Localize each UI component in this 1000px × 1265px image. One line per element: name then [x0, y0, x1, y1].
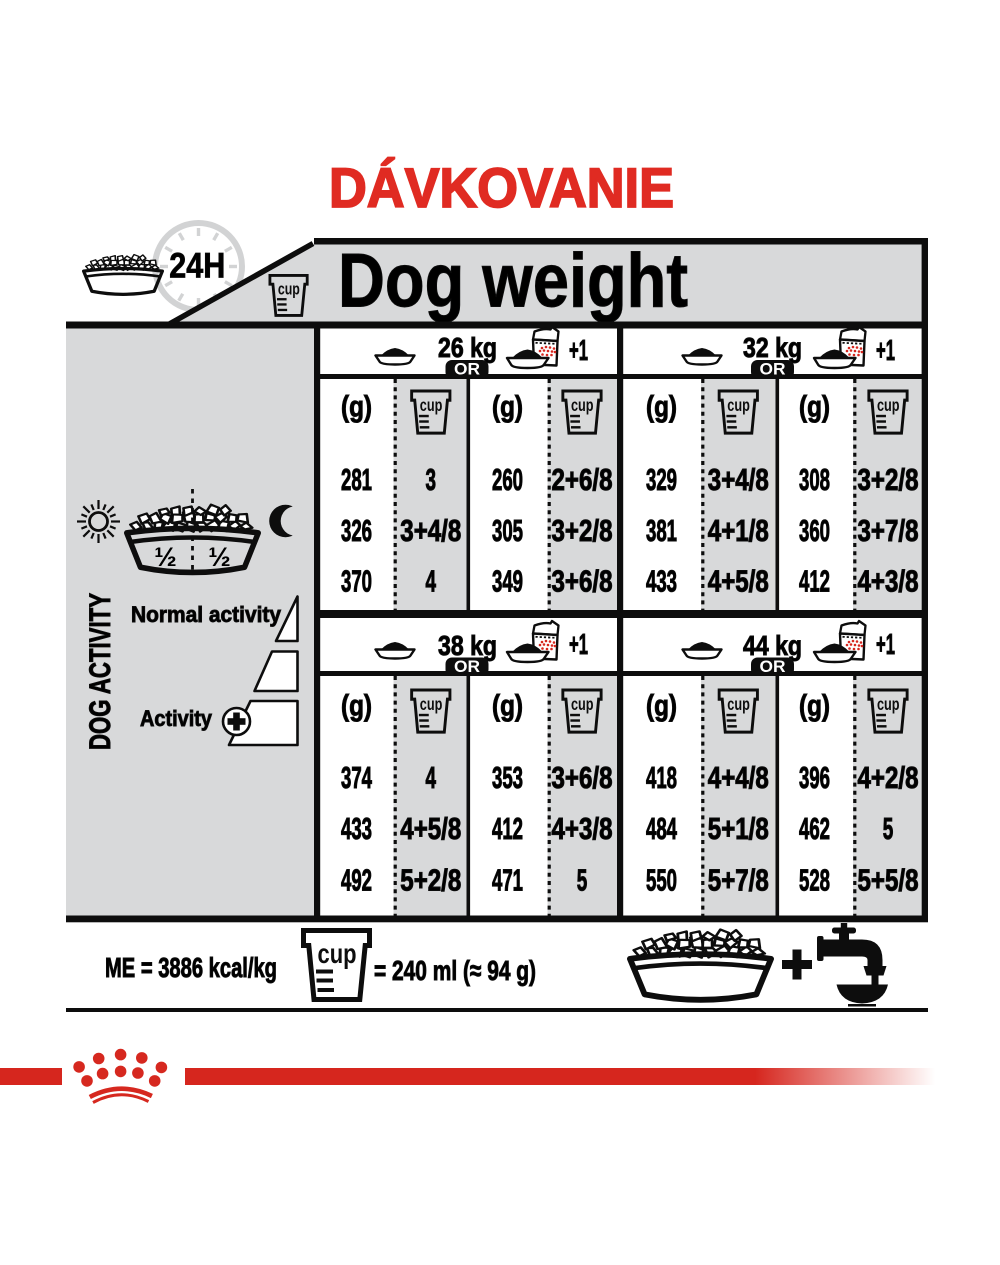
svg-text:412: 412	[799, 564, 830, 599]
svg-text:+1: +1	[876, 629, 895, 661]
svg-text:396: 396	[799, 760, 830, 795]
svg-text:32 kg: 32 kg	[743, 332, 802, 363]
svg-text:5: 5	[883, 811, 894, 846]
svg-text:381: 381	[646, 513, 677, 548]
svg-text:(g): (g)	[799, 690, 830, 723]
svg-text:DOG ACTIVITY: DOG ACTIVITY	[84, 593, 117, 750]
svg-text:5+1/8: 5+1/8	[708, 811, 769, 846]
svg-text:433: 433	[341, 811, 372, 846]
svg-text:½: ½	[208, 542, 231, 572]
svg-text:4+1/8: 4+1/8	[708, 513, 769, 548]
svg-text:462: 462	[799, 811, 830, 846]
svg-text:5: 5	[577, 863, 588, 898]
svg-text:Activity: Activity	[140, 706, 213, 731]
svg-text:3+7/8: 3+7/8	[858, 513, 919, 548]
svg-text:(g): (g)	[646, 391, 677, 424]
svg-text:ME = 3886 kcal/kg: ME = 3886 kcal/kg	[105, 952, 277, 983]
svg-text:OR: OR	[760, 658, 786, 676]
svg-text:OR: OR	[454, 361, 480, 379]
svg-text:2+6/8: 2+6/8	[552, 462, 613, 497]
svg-text:550: 550	[646, 863, 677, 898]
svg-text:5+5/8: 5+5/8	[858, 863, 919, 898]
svg-text:471: 471	[492, 863, 523, 898]
svg-text:44 kg: 44 kg	[743, 630, 802, 661]
svg-text:(g): (g)	[341, 391, 372, 424]
svg-text:360: 360	[799, 513, 830, 548]
svg-text:3: 3	[426, 462, 437, 497]
svg-text:260: 260	[492, 462, 523, 497]
svg-text:4+3/8: 4+3/8	[858, 564, 919, 599]
svg-text:+1: +1	[569, 629, 588, 661]
svg-text:433: 433	[646, 564, 677, 599]
svg-text:½: ½	[154, 542, 177, 572]
svg-text:326: 326	[341, 513, 372, 548]
svg-text:484: 484	[646, 811, 677, 846]
svg-text:353: 353	[492, 760, 523, 795]
svg-text:349: 349	[492, 564, 523, 599]
svg-text:24H: 24H	[169, 247, 225, 286]
svg-text:329: 329	[646, 462, 677, 497]
svg-text:374: 374	[341, 760, 372, 795]
svg-text:+1: +1	[569, 335, 588, 367]
svg-text:4: 4	[426, 564, 437, 599]
svg-text:3+4/8: 3+4/8	[400, 513, 461, 548]
svg-text:4+4/8: 4+4/8	[708, 760, 769, 795]
svg-text:308: 308	[799, 462, 830, 497]
svg-text:412: 412	[492, 811, 523, 846]
svg-text:38 kg: 38 kg	[438, 630, 497, 661]
svg-text:+1: +1	[876, 335, 895, 367]
svg-text:4: 4	[426, 760, 437, 795]
svg-text:5+7/8: 5+7/8	[708, 863, 769, 898]
svg-text:(g): (g)	[341, 690, 372, 723]
svg-text:3+2/8: 3+2/8	[858, 462, 919, 497]
svg-text:492: 492	[341, 863, 372, 898]
svg-text:(g): (g)	[492, 391, 523, 424]
svg-text:Normal activity: Normal activity	[131, 602, 282, 627]
svg-text:418: 418	[646, 760, 677, 795]
svg-text:OR: OR	[760, 361, 786, 379]
svg-text:281: 281	[341, 462, 372, 497]
svg-text:26 kg: 26 kg	[438, 332, 497, 363]
svg-text:4+5/8: 4+5/8	[400, 811, 461, 846]
svg-text:528: 528	[799, 863, 830, 898]
svg-text:(g): (g)	[646, 690, 677, 723]
svg-text:= 240 ml (≈ 94 g): = 240 ml (≈ 94 g)	[374, 955, 536, 986]
svg-text:4+3/8: 4+3/8	[552, 811, 613, 846]
svg-text:4+5/8: 4+5/8	[708, 564, 769, 599]
svg-text:3+2/8: 3+2/8	[552, 513, 613, 548]
svg-text:(g): (g)	[799, 391, 830, 424]
svg-text:OR: OR	[454, 658, 480, 676]
svg-text:3+6/8: 3+6/8	[552, 564, 613, 599]
svg-text:5+2/8: 5+2/8	[400, 863, 461, 898]
svg-text:3+4/8: 3+4/8	[708, 462, 769, 497]
svg-text:3+6/8: 3+6/8	[552, 760, 613, 795]
svg-text:370: 370	[341, 564, 372, 599]
svg-text:(g): (g)	[492, 690, 523, 723]
svg-text:Dog weight: Dog weight	[338, 239, 688, 324]
svg-text:DÁVKOVANIE: DÁVKOVANIE	[329, 156, 674, 219]
svg-text:4+2/8: 4+2/8	[858, 760, 919, 795]
svg-text:305: 305	[492, 513, 523, 548]
